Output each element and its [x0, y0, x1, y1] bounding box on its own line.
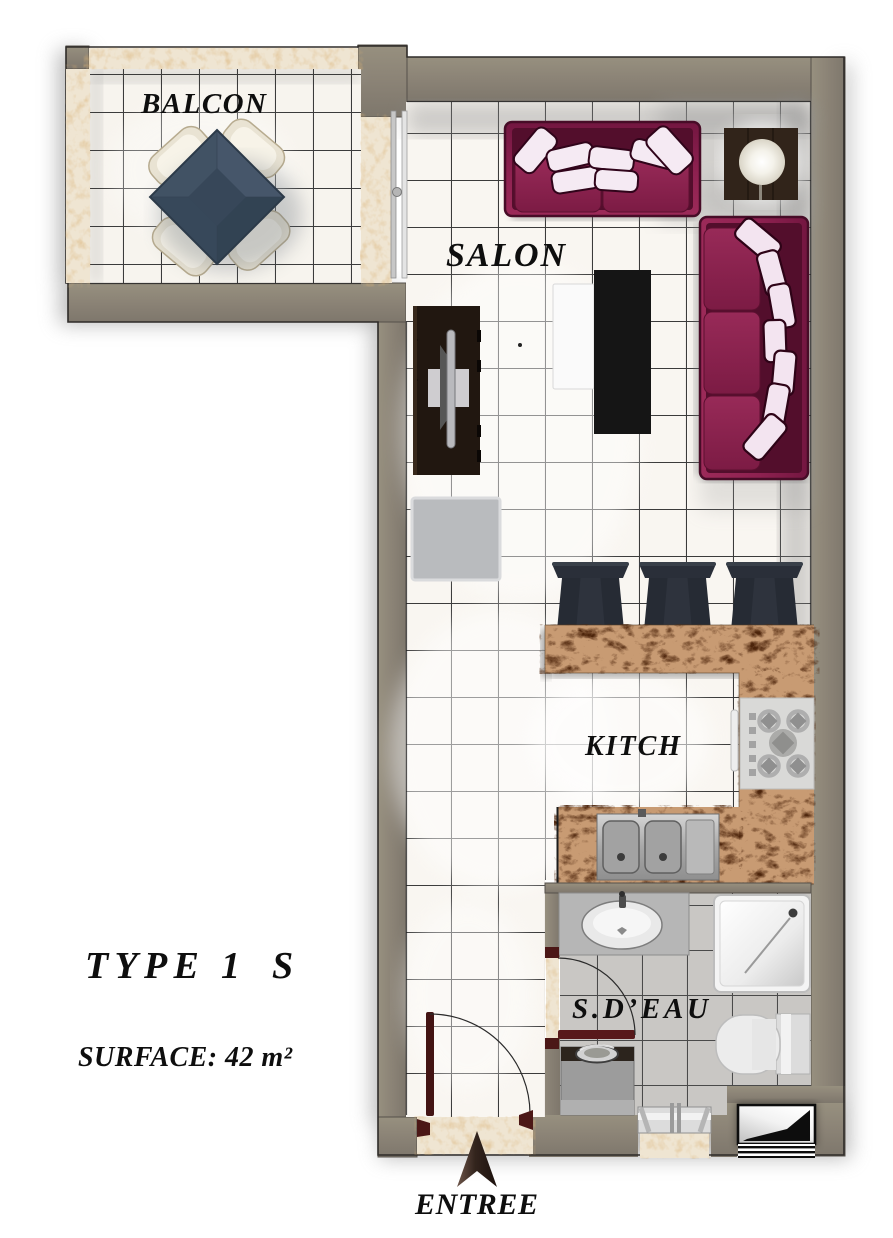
svg-text:SURFACE: 42 m²: SURFACE: 42 m²	[78, 1042, 293, 1073]
svg-text:BALCON: BALCON	[140, 88, 267, 120]
svg-text:S.D’EAU: S.D’EAU	[572, 993, 710, 1025]
svg-text:S: S	[272, 945, 293, 987]
svg-text:ENTREE: ENTREE	[414, 1188, 538, 1221]
svg-text:SALON: SALON	[446, 237, 566, 274]
svg-text:KITCH: KITCH	[584, 731, 681, 762]
